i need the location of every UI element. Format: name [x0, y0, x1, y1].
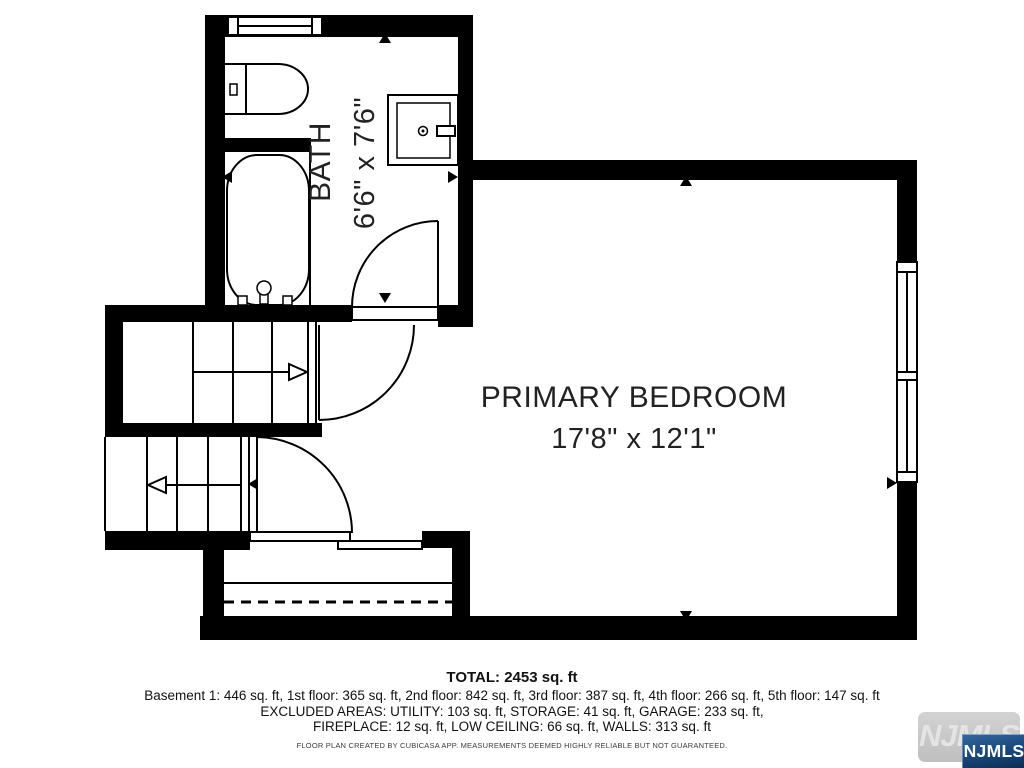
tub-deck-right — [283, 296, 292, 305]
toilet-flush-button — [230, 84, 237, 95]
bath-arrow-right — [448, 171, 458, 183]
bath-door-threshold — [352, 307, 438, 320]
floor-plan-page: BATH 6'6" x 7'6" PRIMARY BEDROOM 17'8" x… — [0, 0, 1024, 768]
primary-bedroom-dimensions: 17'8" x 12'1" — [551, 423, 717, 455]
direction-arrow-left — [148, 477, 166, 493]
wall-bath-stub — [205, 138, 311, 152]
bathtub-icon — [227, 155, 309, 305]
toilet-bowl — [246, 64, 308, 114]
bedroom-window-icon — [897, 262, 917, 482]
wall-bath-left — [205, 15, 225, 307]
bath-door-icon — [352, 221, 438, 307]
excluded-areas-text-line1: EXCLUDED AREAS: UTILITY: 103 sq. ft, STO… — [0, 704, 1024, 719]
door-swing-arc — [257, 437, 352, 533]
wall-closet-right — [452, 531, 470, 616]
bath-room-dimensions: 6'6" x 7'6" — [349, 97, 381, 229]
shower-drain-dot — [422, 130, 425, 133]
wall-bottom — [200, 616, 917, 640]
primary-bedroom-label: PRIMARY BEDROOM — [481, 381, 787, 414]
shower-door-handle — [437, 126, 455, 136]
wall-stairs-top — [105, 305, 352, 322]
door-swing-arc — [352, 221, 438, 307]
hall-door-upper-icon — [319, 325, 414, 420]
bath-room-label: BATH — [304, 122, 337, 202]
wall-closet-left — [203, 531, 224, 616]
floor-areas-text: Basement 1: 446 sq. ft, 1st floor: 365 s… — [0, 688, 1024, 703]
bath-arrow-down — [379, 293, 391, 303]
hall-door-lower-icon — [257, 437, 352, 533]
toilet-icon — [224, 64, 308, 114]
closet — [224, 583, 452, 602]
floor-plan-drawing: BATH 6'6" x 7'6" PRIMARY BEDROOM 17'8" x… — [0, 0, 1024, 660]
closet-sliding-door-icon — [250, 532, 422, 549]
wall-stairs-bottom — [105, 531, 250, 550]
direction-arrow-right — [289, 364, 307, 380]
wall-bedroom-right-upper — [897, 160, 917, 264]
wall-hall-mid — [105, 423, 322, 437]
wall-slide-right-jamb — [422, 531, 452, 548]
shower-icon — [388, 95, 458, 165]
wall-bath-door-corner — [438, 305, 473, 327]
staircase-lower — [147, 437, 241, 531]
tub-faucet-head — [257, 281, 271, 295]
njmls-badge-logo: NJMLS — [962, 734, 1024, 768]
excluded-areas-text-line2: FIREPLACE: 12 sq. ft, LOW CEILING: 66 sq… — [0, 719, 1024, 734]
wall-bedroom-top — [458, 160, 917, 180]
wall-stairs-left — [105, 305, 123, 437]
tub-deck-left — [238, 296, 247, 305]
staircase-upper — [193, 322, 307, 423]
door-swing-arc — [319, 325, 414, 420]
total-area-text: TOTAL: 2453 sq. ft — [0, 669, 1024, 686]
bedroom-arrow-right — [887, 477, 897, 489]
disclaimer-text: FLOOR PLAN CREATED BY CUBICASA APP. MEAS… — [0, 741, 1024, 750]
bath-window-icon — [228, 17, 322, 35]
